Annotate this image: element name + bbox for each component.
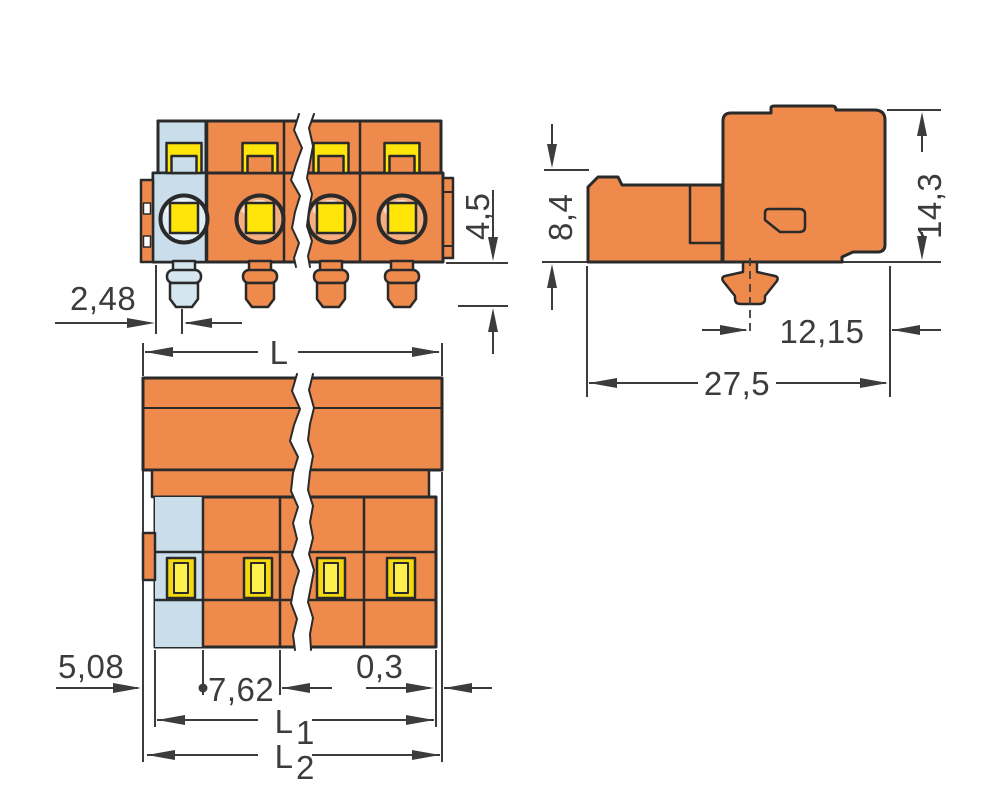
dim-label-front-height: 8,4: [542, 194, 579, 241]
entry-pole-1: [161, 196, 208, 243]
latch-notch: [390, 156, 415, 173]
contact-slot-1: [167, 558, 195, 598]
dim-label-pitch: 7,62: [208, 671, 274, 708]
arrowhead: [720, 325, 748, 335]
arrowhead: [406, 715, 434, 725]
dim-label-depth: 27,5: [704, 365, 770, 402]
drawing-canvas: 2,48 4,5 8,4 14,3 12,15: [0, 0, 1000, 790]
tab-slot: [144, 236, 151, 247]
side-tab-right: [443, 178, 453, 258]
latch-notch: [248, 156, 273, 173]
slot-inner: [174, 563, 188, 593]
dim-label-l2: L: [275, 738, 294, 775]
contact-square: [388, 203, 416, 233]
latch-notch: [319, 156, 344, 173]
front-view: 2,48 4,5: [55, 112, 508, 354]
tab-body: [141, 180, 153, 262]
dim-label-pin-offset: 2,48: [70, 280, 136, 317]
arrowhead: [406, 683, 434, 693]
top-view: L: [56, 334, 492, 786]
pin-body: [388, 283, 416, 307]
arrowhead: [412, 347, 440, 357]
arrowhead: [547, 264, 557, 288]
contact-slot-2: [244, 558, 272, 598]
arrowhead: [547, 144, 557, 168]
latch-pole-4: [385, 143, 420, 173]
pin-body: [246, 283, 274, 307]
contact-slot-4: [387, 558, 415, 598]
latch-notch: [172, 156, 197, 173]
pin-collar: [385, 270, 419, 283]
latch-pole-1: [167, 143, 202, 173]
dim-label-pin-length: 4,5: [459, 193, 496, 240]
body-rear-block: [723, 106, 885, 262]
pin-body: [170, 283, 198, 307]
shroud-step: [152, 470, 429, 497]
arrowhead: [589, 378, 617, 388]
contact-slot-3: [317, 558, 345, 598]
entry-pole-3: [308, 196, 355, 243]
solder-pin-1: [167, 261, 201, 307]
slot-inner: [324, 563, 338, 593]
entry-pole-2: [237, 196, 284, 243]
side-view: 8,4 14,3 12,15 27,5: [542, 106, 948, 402]
slot-inner: [394, 563, 408, 593]
body-front-block: [588, 177, 722, 262]
arrowhead: [860, 378, 888, 388]
side-tab-left: [141, 180, 153, 262]
solder-pin-2: [243, 261, 277, 307]
contact-square: [170, 203, 198, 233]
slot-inner: [251, 563, 265, 593]
contact-square: [317, 203, 345, 233]
arrowhead: [145, 347, 173, 357]
dim-label-first-pitch: 5,08: [58, 648, 124, 685]
dim-dot: [199, 684, 208, 693]
arrowhead: [917, 112, 927, 136]
dim-label-total-height: 14,3: [911, 173, 948, 239]
dim-label-length: L: [270, 334, 289, 371]
pin-collar: [167, 270, 201, 283]
arrowhead: [127, 318, 155, 328]
arrowhead: [113, 683, 141, 693]
contact-square: [246, 203, 274, 233]
dim-label-l1-sub: 1: [296, 714, 315, 751]
arrowhead: [147, 750, 175, 760]
latch-pole-3: [314, 143, 349, 173]
dim-label-foot-to-rear: 12,15: [779, 313, 864, 350]
solder-pin-4: [385, 261, 419, 307]
connector-dimension-drawing: 2,48 4,5 8,4 14,3 12,15: [0, 0, 1000, 790]
arrowhead: [412, 750, 440, 760]
latch-pole-2: [243, 143, 278, 173]
pin-body: [317, 283, 345, 307]
pin-collar: [314, 270, 348, 283]
arrowhead: [157, 715, 185, 725]
arrowhead: [184, 318, 212, 328]
dim-label-l2-sub: 2: [296, 749, 315, 786]
dim-label-l1: L: [275, 703, 294, 740]
entry-pole-4: [379, 196, 426, 243]
tab-slot: [144, 203, 151, 214]
pin-collar: [243, 270, 277, 283]
dim-label-flange: 0,3: [356, 648, 403, 685]
arrowhead: [488, 308, 498, 332]
side-tab: [143, 533, 155, 580]
solder-pin-3: [314, 261, 348, 307]
